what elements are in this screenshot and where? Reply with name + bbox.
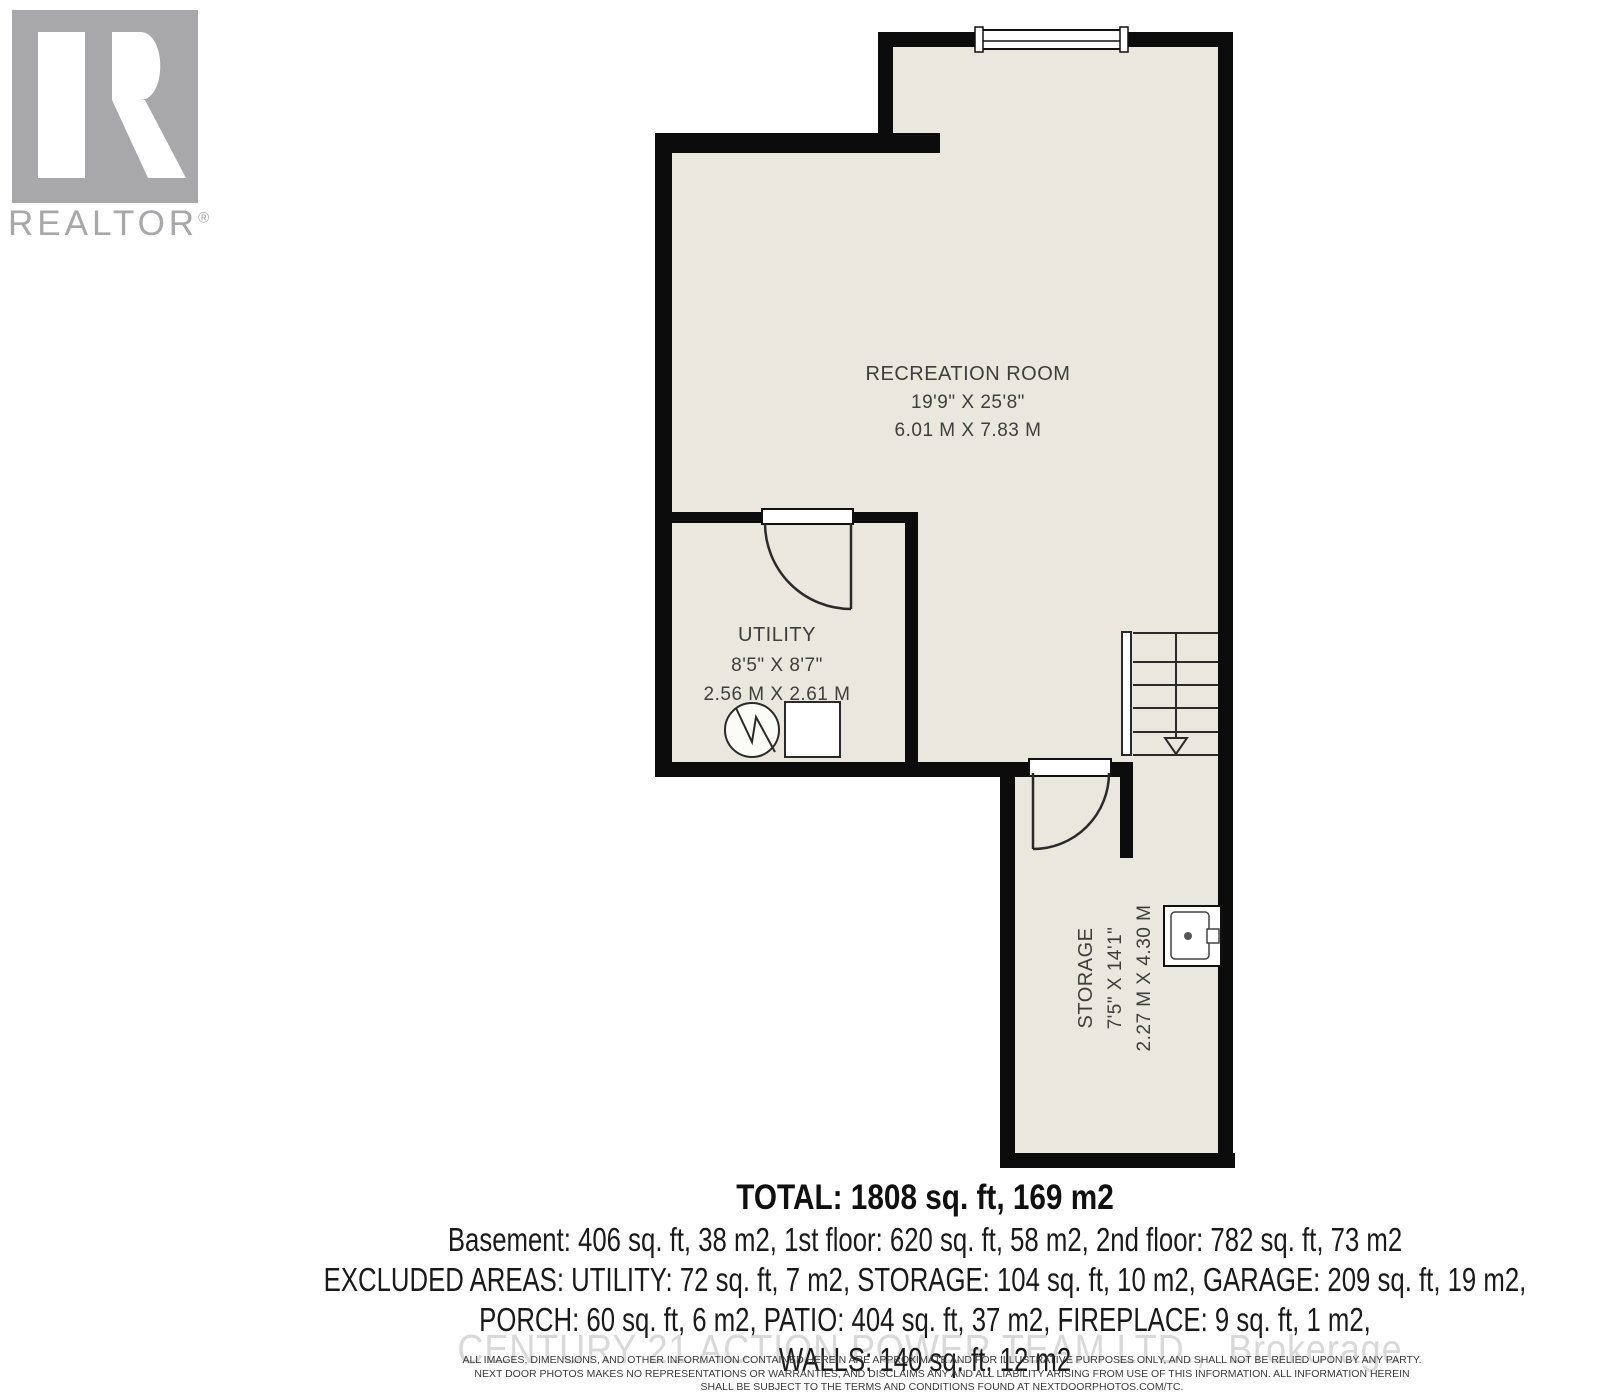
- recreation-name: RECREATION ROOM: [866, 363, 1071, 385]
- disclaimer-line-2: NEXT DOOR PHOTOS MAKES NO REPRESENTATION…: [0, 1368, 1600, 1382]
- recreation-dim-metric: 6.01 M X 7.83 M: [895, 420, 1042, 441]
- window-frame: [979, 30, 1124, 49]
- wall-left: [655, 133, 672, 777]
- furnace-symbol: [785, 702, 840, 757]
- excluded-areas-text-1: EXCLUDED AREAS: UTILITY: 72 sq. ft, 7 m2…: [204, 1260, 1600, 1300]
- storage-dim-imperial: 7'5" X 14'1": [1105, 927, 1126, 1030]
- total-area-text: TOTAL: 1808 sq. ft, 169 m2: [139, 1176, 1600, 1220]
- window: [975, 27, 1128, 52]
- recreation-dim-imperial: 19'9" X 25'8": [911, 392, 1025, 413]
- window-cap-left: [975, 27, 983, 52]
- floor-areas-text: Basement: 406 sq. ft, 38 m2, 1st floor: …: [204, 1220, 1600, 1260]
- utility-door-opening: [762, 509, 853, 524]
- disclaimer-line-1: ALL IMAGES, DIMENSIONS, AND OTHER INFORM…: [0, 1354, 1600, 1368]
- wall-storage-bottom: [1000, 1153, 1235, 1168]
- floorplan-page: CENTURY 21 ACTION POWER TEAM LTD., Broke…: [0, 0, 1600, 1400]
- area-summary: TOTAL: 1808 sq. ft, 169 m2 Basement: 406…: [0, 1176, 1600, 1380]
- stair-railing: [1122, 632, 1131, 755]
- utility-dim-imperial: 8'5" X 8'7": [731, 655, 823, 676]
- fixture-dot: [1184, 932, 1192, 940]
- disclaimer: ALL IMAGES, DIMENSIONS, AND OTHER INFORM…: [0, 1354, 1600, 1395]
- wall-stub-landing: [1120, 762, 1133, 858]
- wall-utility-right: [905, 512, 918, 762]
- disclaimer-line-3: SHALL BE SUBJECT TO THE TERMS AND CONDIT…: [0, 1381, 1600, 1395]
- wall-storage-left: [1000, 762, 1015, 1168]
- window-cap-right: [1120, 27, 1128, 52]
- water-heater-symbol: [725, 703, 779, 757]
- wall-right: [1218, 32, 1233, 1168]
- fixture-tab: [1207, 929, 1219, 943]
- utility-dim-metric: 2.56 M X 2.61 M: [704, 684, 851, 705]
- wall-main-top: [655, 133, 940, 153]
- storage-fixture: [1164, 906, 1221, 966]
- excluded-areas-text-2: PORCH: 60 sq. ft, 6 m2, PATIO: 404 sq. f…: [204, 1300, 1600, 1340]
- utility-name: UTILITY: [738, 624, 816, 646]
- storage-name: STORAGE: [1075, 928, 1097, 1029]
- wall-nook-left: [878, 32, 893, 143]
- storage-door-opening: [1029, 759, 1111, 776]
- storage-dim-metric: 2.27 M X 4.30 M: [1134, 905, 1155, 1052]
